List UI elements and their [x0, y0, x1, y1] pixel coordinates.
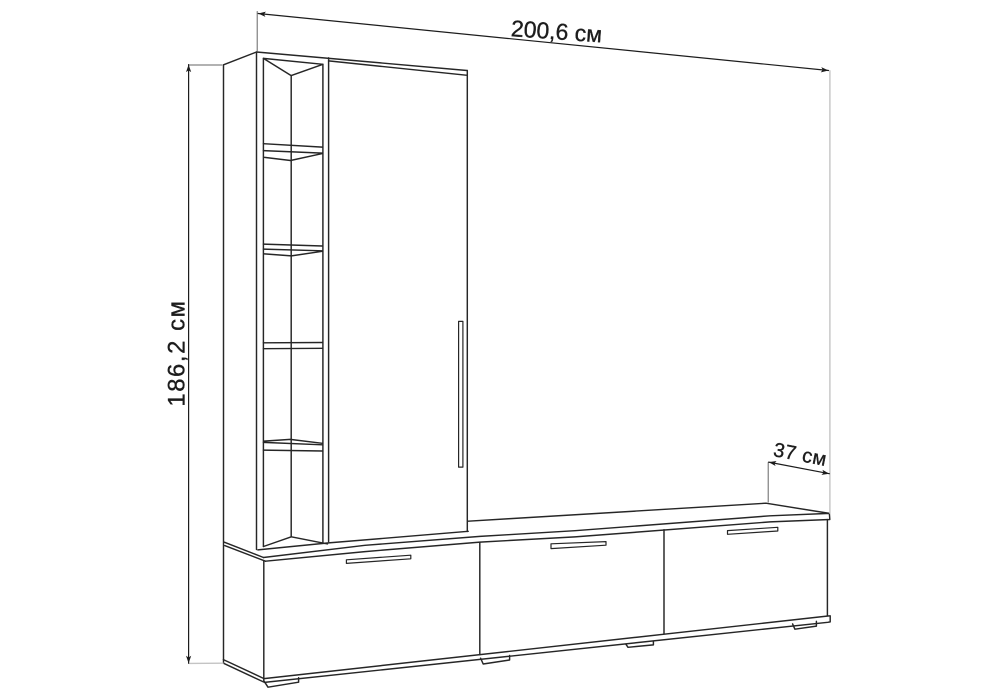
- svg-text:37 см: 37 см: [772, 439, 829, 471]
- svg-text:186,2 см: 186,2 см: [164, 299, 191, 406]
- svg-text:200,6 см: 200,6 см: [510, 15, 603, 47]
